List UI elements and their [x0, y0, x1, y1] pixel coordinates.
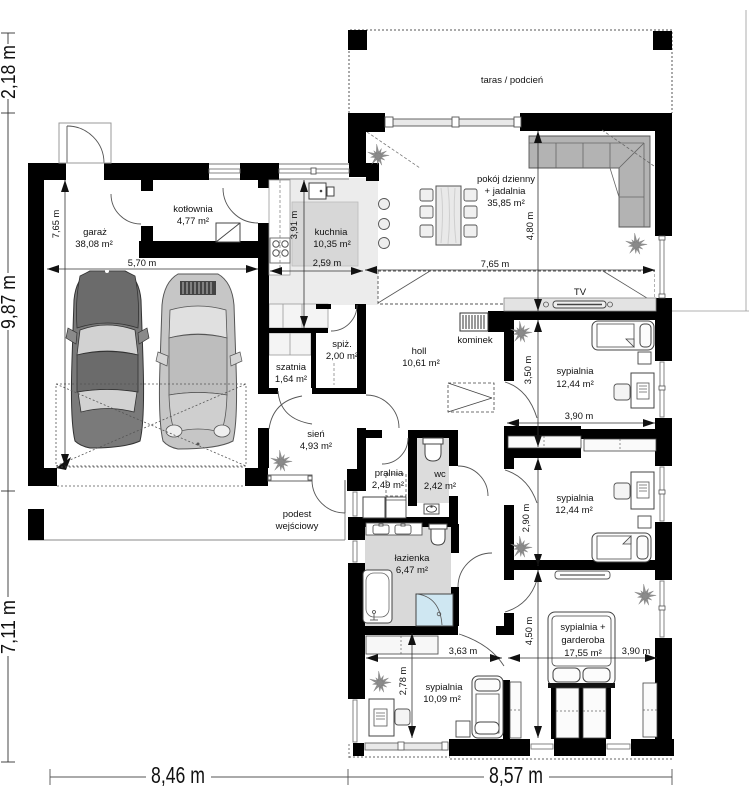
svg-text:10,09 m²: 10,09 m²	[423, 694, 461, 705]
svg-text:wc: wc	[433, 469, 446, 480]
svg-text:3,91 m: 3,91 m	[289, 211, 299, 240]
svg-text:kotłownia: kotłownia	[173, 204, 213, 215]
svg-text:2,18 m: 2,18 m	[0, 45, 20, 99]
svg-text:3,90 m: 3,90 m	[565, 411, 594, 421]
svg-text:+ jadalnia: + jadalnia	[485, 186, 527, 197]
svg-text:garderoba: garderoba	[561, 635, 605, 646]
svg-text:sypialnia +: sypialnia +	[560, 622, 606, 633]
svg-text:szatnia: szatnia	[276, 362, 307, 373]
svg-text:sień: sień	[307, 429, 324, 440]
svg-text:3,90 m: 3,90 m	[622, 646, 651, 656]
svg-text:3,63 m: 3,63 m	[449, 646, 478, 656]
svg-text:2,90 m: 2,90 m	[521, 504, 531, 533]
svg-text:taras / podcień: taras / podcień	[481, 75, 543, 86]
svg-text:sypialnia: sypialnia	[557, 366, 595, 377]
svg-text:4,50 m: 4,50 m	[524, 617, 534, 646]
svg-text:podest: podest	[283, 509, 312, 520]
svg-text:spiż.: spiż.	[332, 339, 352, 350]
svg-text:5,70 m: 5,70 m	[128, 258, 157, 268]
svg-text:sypialnia: sypialnia	[557, 493, 595, 504]
svg-text:pokój dzienny: pokój dzienny	[477, 174, 535, 185]
svg-text:pralnia: pralnia	[375, 468, 404, 479]
svg-text:TV: TV	[574, 287, 587, 298]
svg-text:4,93 m²: 4,93 m²	[300, 441, 332, 452]
svg-text:10,61 m²: 10,61 m²	[402, 358, 440, 369]
svg-text:35,85 m²: 35,85 m²	[487, 198, 525, 209]
svg-text:holl: holl	[412, 346, 427, 357]
svg-text:17,55 m²: 17,55 m²	[564, 648, 602, 659]
svg-text:garaż: garaż	[83, 227, 107, 238]
svg-text:2,49 m²: 2,49 m²	[372, 480, 404, 491]
svg-text:38,08 m²: 38,08 m²	[75, 239, 113, 250]
svg-text:7,11 m: 7,11 m	[0, 600, 20, 654]
svg-text:12,44 m²: 12,44 m²	[555, 505, 593, 516]
svg-text:2,78 m: 2,78 m	[398, 667, 408, 696]
svg-text:12,44 m²: 12,44 m²	[556, 379, 594, 390]
svg-text:2,59 m: 2,59 m	[313, 258, 342, 268]
svg-text:kuchnia: kuchnia	[315, 227, 348, 238]
svg-text:8,57 m: 8,57 m	[489, 762, 543, 788]
svg-text:2,42 m²: 2,42 m²	[424, 481, 456, 492]
svg-text:7,65 m: 7,65 m	[481, 259, 510, 269]
svg-text:6,47 m²: 6,47 m²	[396, 565, 428, 576]
svg-text:7,65 m: 7,65 m	[51, 210, 61, 239]
svg-text:9,87 m: 9,87 m	[0, 275, 20, 329]
svg-text:4,77 m²: 4,77 m²	[177, 216, 209, 227]
svg-text:2,00 m²: 2,00 m²	[326, 351, 358, 362]
svg-text:wejściowy: wejściowy	[275, 521, 319, 532]
svg-text:sypialnia: sypialnia	[426, 682, 464, 693]
svg-text:10,35 m²: 10,35 m²	[313, 239, 351, 250]
svg-text:8,46 m: 8,46 m	[151, 762, 205, 788]
svg-text:3,50 m: 3,50 m	[523, 356, 533, 385]
svg-text:kominek: kominek	[457, 335, 493, 346]
svg-text:4,80 m: 4,80 m	[525, 212, 535, 241]
svg-text:1,64 m²: 1,64 m²	[275, 374, 307, 385]
svg-text:łazienka: łazienka	[395, 553, 431, 564]
